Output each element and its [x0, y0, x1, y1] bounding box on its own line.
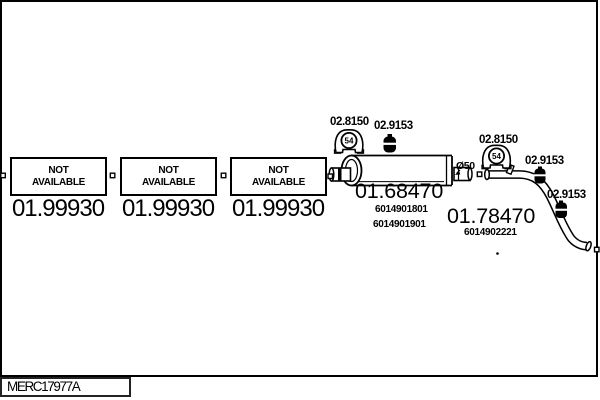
not-available-line1: NOT: [268, 165, 288, 177]
part-number-muffler[interactable]: 01.68470: [355, 181, 443, 203]
connector-square: [1, 173, 6, 178]
not-available-line2: AVAILABLE: [142, 177, 195, 189]
hanger-label-1[interactable]: 02.8150: [330, 117, 369, 129]
exhaust-hanger-icon: 54: [482, 145, 511, 168]
connector-square: [477, 172, 482, 177]
rubber-mount-icon: [383, 134, 398, 153]
diagram-code-box: MERC17977A: [0, 377, 131, 397]
not-available-box[interactable]: NOT AVAILABLE: [120, 157, 217, 196]
tailpipe-inlet-end: [485, 170, 490, 180]
not-available-box[interactable]: NOT AVAILABLE: [230, 157, 327, 196]
rubber-mount-icon: [534, 167, 547, 184]
mount-label-2[interactable]: 02.9153: [525, 156, 564, 168]
pipe-diameter-label: Ø50: [456, 161, 475, 172]
part-number-tailpipe[interactable]: 01.78470: [447, 206, 535, 228]
connector-square: [110, 173, 115, 178]
not-available-line2: AVAILABLE: [252, 177, 305, 189]
not-available-line1: NOT: [48, 165, 68, 177]
stray-dot: [496, 252, 499, 255]
connector-square: [328, 174, 333, 179]
diagram-code: MERC17977A: [7, 380, 79, 394]
oem-number-muffler-2: 6014901901: [373, 220, 426, 230]
oem-number-muffler-1: 6014901801: [375, 205, 428, 215]
not-available-box[interactable]: NOT AVAILABLE: [10, 157, 107, 196]
inlet-clamp: [338, 169, 342, 181]
exhaust-parts-diagram: 54 54: [0, 0, 600, 400]
part-number-cat-section[interactable]: 01.99930: [229, 197, 327, 221]
hanger-label-2[interactable]: 02.8150: [479, 135, 518, 147]
connector-square: [221, 173, 226, 178]
hanger-badge: 54: [345, 136, 354, 145]
exhaust-hanger-icon: 54: [335, 130, 364, 153]
part-number-front-section[interactable]: 01.99930: [9, 197, 107, 221]
hanger-badge: 54: [492, 152, 501, 161]
mount-label-1[interactable]: 02.9153: [374, 121, 413, 133]
not-available-line2: AVAILABLE: [32, 177, 85, 189]
connector-square: [595, 247, 600, 252]
part-number-mid-section[interactable]: 01.99930: [119, 197, 217, 221]
mount-label-3[interactable]: 02.9153: [547, 190, 586, 202]
oem-number-tailpipe: 6014902221: [464, 228, 517, 238]
not-available-line1: NOT: [158, 165, 178, 177]
